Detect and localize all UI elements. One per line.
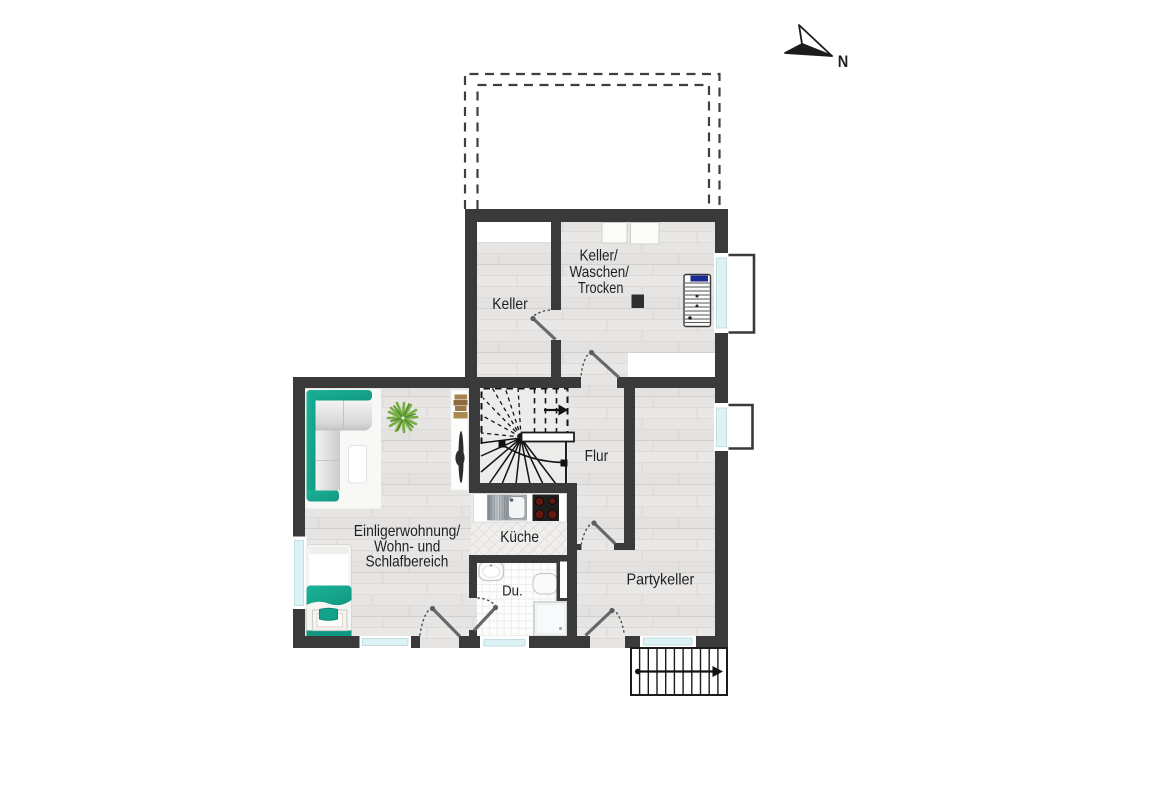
svg-text:Waschen/: Waschen/ [570, 264, 630, 281]
svg-text:Partykeller: Partykeller [627, 572, 695, 589]
svg-text:N: N [838, 52, 849, 71]
svg-text:Keller/: Keller/ [580, 248, 619, 265]
svg-text:Schlafbereich: Schlafbereich [366, 554, 449, 571]
svg-text:Keller: Keller [492, 296, 528, 313]
svg-text:Flur: Flur [585, 448, 609, 465]
svg-text:Du.: Du. [502, 582, 523, 599]
svg-text:Küche: Küche [500, 529, 539, 546]
svg-text:Trocken: Trocken [578, 280, 623, 297]
